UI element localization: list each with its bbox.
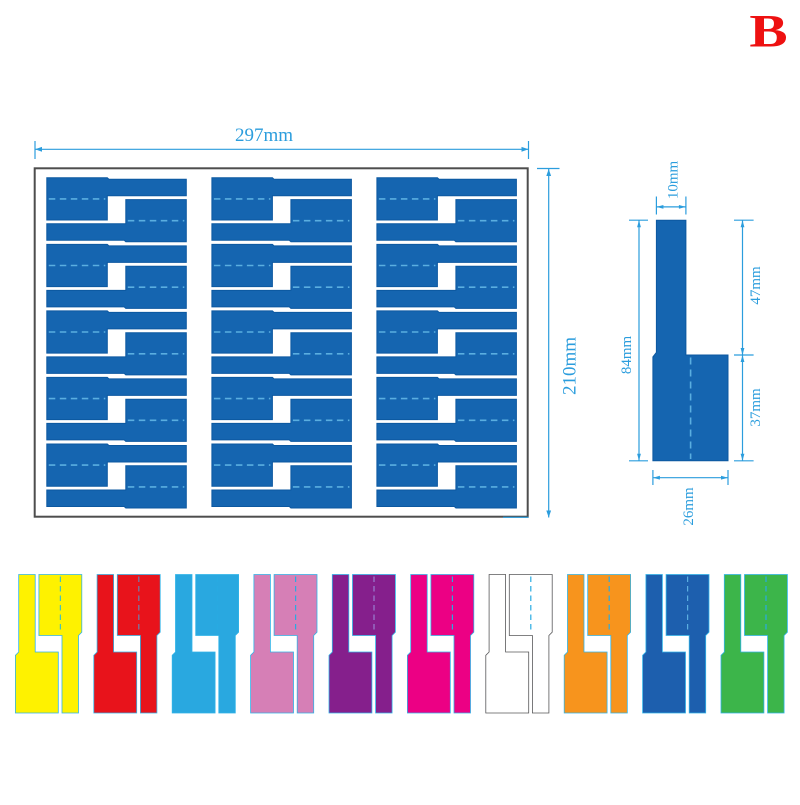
svg-text:10mm: 10mm — [666, 161, 682, 200]
svg-text:26mm: 26mm — [681, 487, 697, 526]
svg-text:37mm: 37mm — [748, 388, 764, 427]
svg-text:47mm: 47mm — [748, 266, 764, 305]
svg-text:84mm: 84mm — [619, 336, 635, 375]
svg-text:B: B — [749, 5, 787, 57]
svg-text:297mm: 297mm — [235, 125, 293, 146]
svg-text:210mm: 210mm — [560, 337, 581, 395]
